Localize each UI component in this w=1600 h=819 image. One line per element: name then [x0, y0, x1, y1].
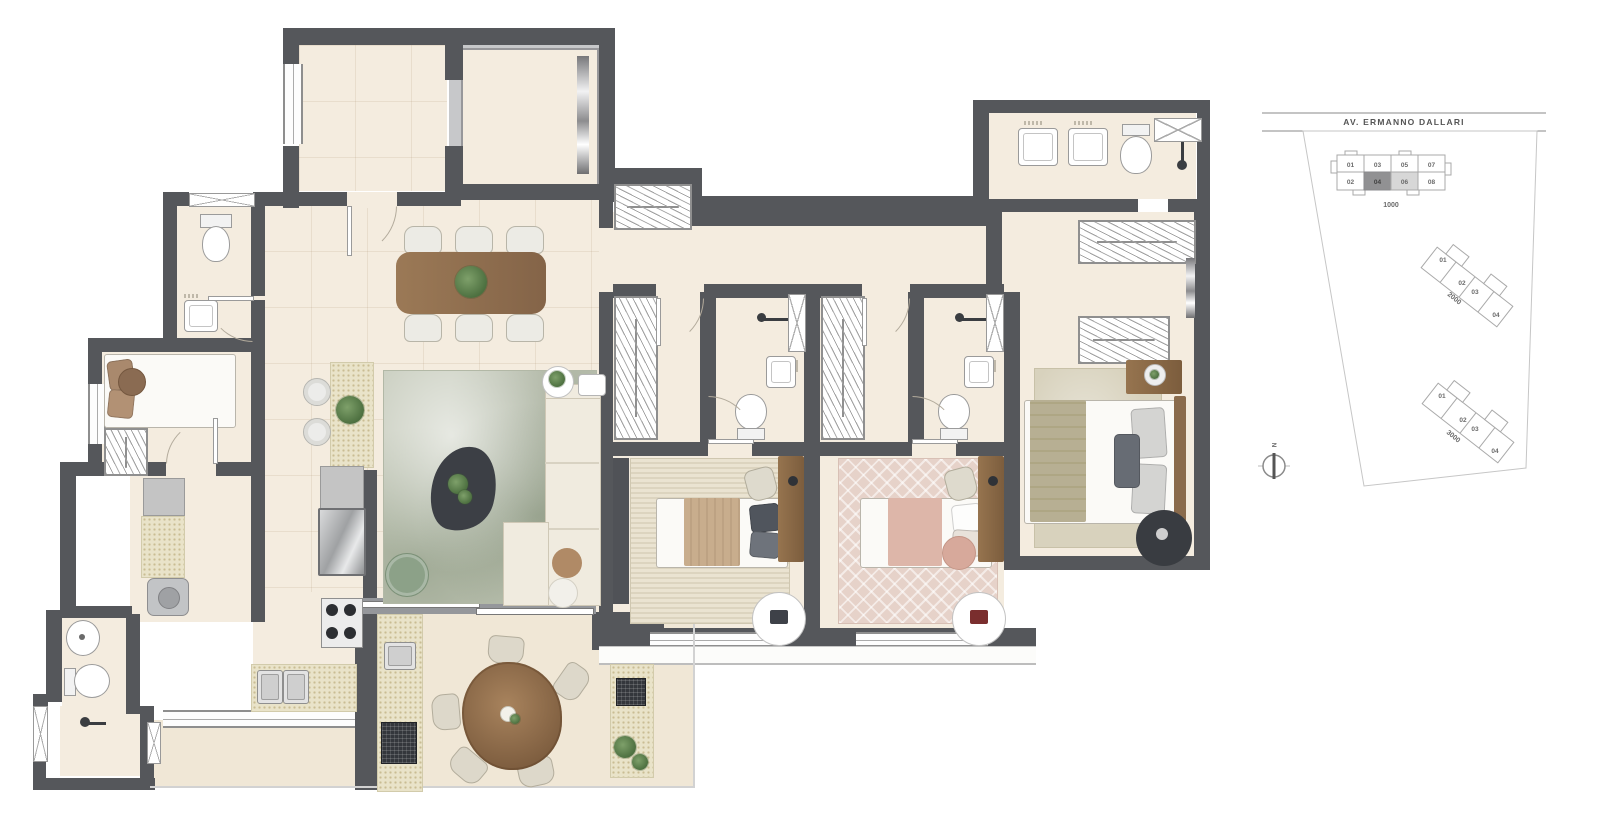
- floor-door-gap: [599, 228, 613, 292]
- unit-label: 03: [1471, 289, 1479, 296]
- wall-segment: [1197, 100, 1210, 212]
- wall-segment: [397, 192, 461, 206]
- dining-chair: [506, 226, 544, 254]
- washing-machine: [147, 578, 189, 616]
- stool: [303, 378, 331, 406]
- shower-head: [1177, 160, 1187, 170]
- wall-segment: [88, 338, 265, 352]
- laundry-counter: [141, 516, 185, 578]
- sofa-cushion-line: [545, 462, 599, 464]
- wall-segment: [613, 442, 708, 456]
- plant: [458, 490, 472, 504]
- wall-segment: [973, 100, 989, 212]
- toilet-tank: [1122, 124, 1150, 136]
- kitchen-sink: [283, 670, 309, 704]
- dining-chair: [455, 314, 493, 342]
- washbasin: [964, 356, 994, 388]
- unit-label: 02: [1459, 417, 1467, 424]
- wall-segment: [599, 292, 613, 640]
- terrace-chair: [487, 634, 525, 665]
- wall-segment: [461, 184, 607, 200]
- unit-label: 04: [1492, 312, 1500, 319]
- unit-label: 03: [1471, 426, 1479, 433]
- dining-chair: [506, 314, 544, 342]
- site-key-plan: AV. ERMANNO DALLARI 01 03 05 07 02 04 06…: [1250, 95, 1550, 495]
- unit-label: 01: [1347, 162, 1355, 169]
- table-centerpiece: [455, 266, 487, 298]
- plant: [549, 371, 565, 387]
- shower-head: [955, 313, 964, 322]
- terrace-counter: [377, 614, 423, 792]
- wall-segment: [973, 100, 1210, 113]
- plant: [1150, 370, 1159, 379]
- shower-box: [986, 294, 1004, 352]
- burner: [326, 627, 338, 639]
- plant: [336, 396, 364, 424]
- wardrobe: [821, 296, 865, 440]
- desk-lamp: [988, 476, 998, 486]
- north-arrow-icon: N: [1258, 443, 1290, 479]
- decor-tray: [578, 374, 606, 396]
- plant: [510, 714, 520, 724]
- bed-blanket: [1030, 400, 1086, 522]
- barbecue-grill: [381, 722, 417, 764]
- kitchen-cabinet: [320, 466, 364, 510]
- window: [1154, 118, 1202, 142]
- terrace-sink: [384, 642, 416, 670]
- master-wardrobe: [1078, 220, 1196, 264]
- wardrobe: [614, 296, 658, 440]
- shower-arm: [962, 318, 986, 321]
- building-label: 1000: [1383, 202, 1399, 209]
- stove: [321, 598, 363, 648]
- wall-segment: [1194, 212, 1210, 570]
- wall-segment: [599, 182, 613, 228]
- linen-closet: [614, 184, 692, 230]
- window: [147, 722, 161, 764]
- wardrobe: [104, 428, 148, 476]
- dining-chair: [455, 226, 493, 254]
- toilet: [74, 664, 110, 698]
- window: [283, 64, 303, 144]
- pillow: [749, 503, 782, 534]
- sofa-pillow: [552, 548, 582, 578]
- window: [189, 193, 255, 207]
- kitchen-sink: [257, 670, 283, 704]
- shower-arm: [1181, 142, 1184, 162]
- building-3000: 01 02 03 04 3000: [1422, 374, 1521, 463]
- plant: [614, 736, 636, 758]
- shower-box: [788, 294, 806, 352]
- headboard: [1174, 396, 1186, 526]
- sofa-chaise: [503, 522, 549, 606]
- pouf: [386, 554, 428, 596]
- wall-segment: [804, 442, 820, 642]
- burner: [344, 627, 356, 639]
- fixture-stamp: [1074, 121, 1092, 125]
- unit-label: 01: [1439, 257, 1447, 264]
- wall-segment: [60, 606, 132, 618]
- wall-segment: [1168, 199, 1210, 212]
- washbasin: [1018, 128, 1058, 166]
- street-label: AV. ERMANNO DALLARI: [1343, 117, 1465, 127]
- ottoman-tray: [1156, 528, 1168, 540]
- floor-plan-canvas: AV. ERMANNO DALLARI 01 03 05 07 02 04 06…: [0, 0, 1600, 819]
- shower-head: [757, 313, 766, 322]
- unit-label: 01: [1438, 393, 1446, 400]
- round-pouf: [942, 536, 976, 570]
- floor-foyer: [299, 45, 447, 191]
- unit-label: 02: [1347, 179, 1355, 186]
- faucet-dot: [79, 634, 85, 640]
- dining-chair: [404, 314, 442, 342]
- wall-segment: [752, 442, 912, 456]
- plant: [632, 754, 648, 770]
- master-wardrobe: [1078, 316, 1170, 364]
- sliding-door-panel: [476, 608, 594, 615]
- round-cushion: [118, 368, 146, 396]
- wall-segment: [126, 614, 140, 714]
- fixture-stamp: [796, 360, 800, 372]
- building-1000: 01 03 05 07 02 04 06 08 1000: [1331, 151, 1451, 209]
- sofa-pillow: [548, 578, 578, 608]
- terrace-chair: [430, 693, 461, 731]
- wall-segment: [600, 168, 702, 184]
- shower-head: [80, 717, 90, 727]
- accent-pillow: [1114, 434, 1140, 488]
- unit-label: 07: [1428, 162, 1436, 169]
- stool: [303, 418, 331, 446]
- laundry-cabinet: [143, 478, 185, 516]
- books: [970, 610, 988, 624]
- wall-segment: [986, 199, 1138, 212]
- unit-label-selected: 04: [1374, 179, 1382, 186]
- wall-segment: [251, 300, 265, 622]
- fixture-stamp: [1024, 121, 1042, 125]
- wall-segment: [1004, 292, 1020, 442]
- books: [770, 610, 788, 624]
- washbasin: [766, 356, 796, 388]
- desk: [778, 456, 804, 562]
- floor-terrace-west: [141, 720, 377, 788]
- wall-segment: [46, 610, 62, 702]
- floor-door-gap: [166, 462, 216, 476]
- desk: [978, 456, 1004, 562]
- unit-label: 04: [1491, 448, 1499, 455]
- washbasin: [1068, 128, 1108, 166]
- bed-blanket: [684, 498, 740, 566]
- wall-segment: [1004, 442, 1020, 570]
- kitchen-window: [163, 710, 355, 728]
- desk-lamp: [788, 476, 798, 486]
- fixture-stamp: [994, 360, 998, 372]
- wall-segment: [283, 28, 299, 64]
- wall-segment: [33, 778, 155, 790]
- unit-label: 02: [1458, 280, 1466, 287]
- washer-door: [158, 587, 180, 609]
- north-label: N: [1270, 443, 1277, 448]
- elevator-door: [577, 56, 589, 174]
- toilet: [202, 226, 230, 262]
- unit-label: 05: [1401, 162, 1409, 169]
- grill-top: [616, 678, 646, 706]
- unit-label: 06: [1401, 179, 1409, 186]
- burner: [326, 604, 338, 616]
- window: [33, 706, 48, 762]
- wall-segment: [283, 192, 347, 206]
- unit-label: 03: [1374, 162, 1382, 169]
- terrace-edge: [693, 614, 695, 788]
- wall-segment: [690, 196, 986, 226]
- burner: [344, 604, 356, 616]
- bed-blanket: [888, 498, 942, 566]
- toilet: [1120, 136, 1152, 174]
- refrigerator: [318, 508, 366, 576]
- dark-wardrobe-strip: [613, 458, 629, 604]
- wall-segment: [60, 462, 76, 612]
- wall-segment: [986, 212, 1002, 292]
- shower-arm: [764, 318, 788, 321]
- fixture-stamp: [184, 294, 200, 298]
- floor-service-shower: [60, 706, 140, 776]
- wall-segment: [956, 442, 1004, 456]
- unit-label: 08: [1428, 179, 1436, 186]
- sofa-cushion-line: [545, 528, 599, 530]
- wall-segment: [251, 206, 265, 296]
- balcony-slab: [599, 646, 1036, 665]
- wall-segment: [253, 192, 283, 206]
- wall-segment: [445, 28, 463, 80]
- mirror: [1186, 258, 1195, 318]
- dining-chair: [404, 226, 442, 254]
- wall-segment: [804, 292, 820, 442]
- wall-segment: [163, 192, 177, 352]
- building-2000: 01 02 03 04 2000: [1421, 238, 1520, 327]
- pillow: [749, 531, 781, 560]
